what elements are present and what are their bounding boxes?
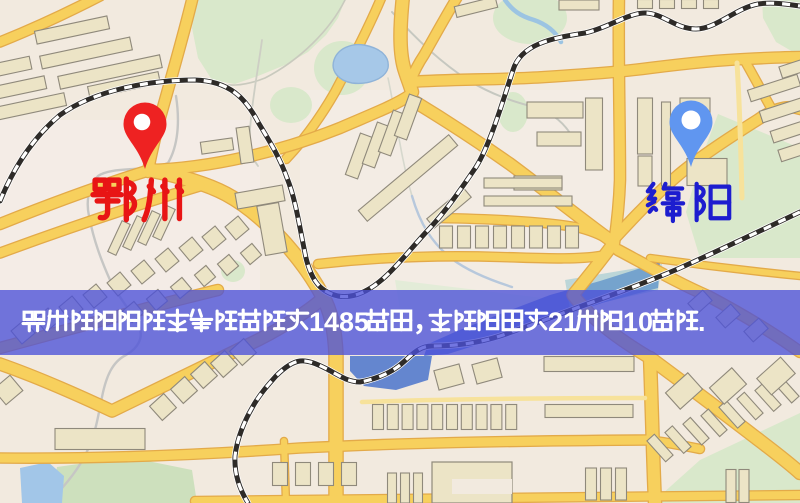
svg-text:21: 21: [548, 307, 578, 337]
svg-text:.: .: [698, 307, 706, 337]
svg-text:1485: 1485: [309, 307, 369, 337]
svg-text:10: 10: [623, 307, 653, 337]
svg-text:，: ，: [413, 307, 440, 337]
